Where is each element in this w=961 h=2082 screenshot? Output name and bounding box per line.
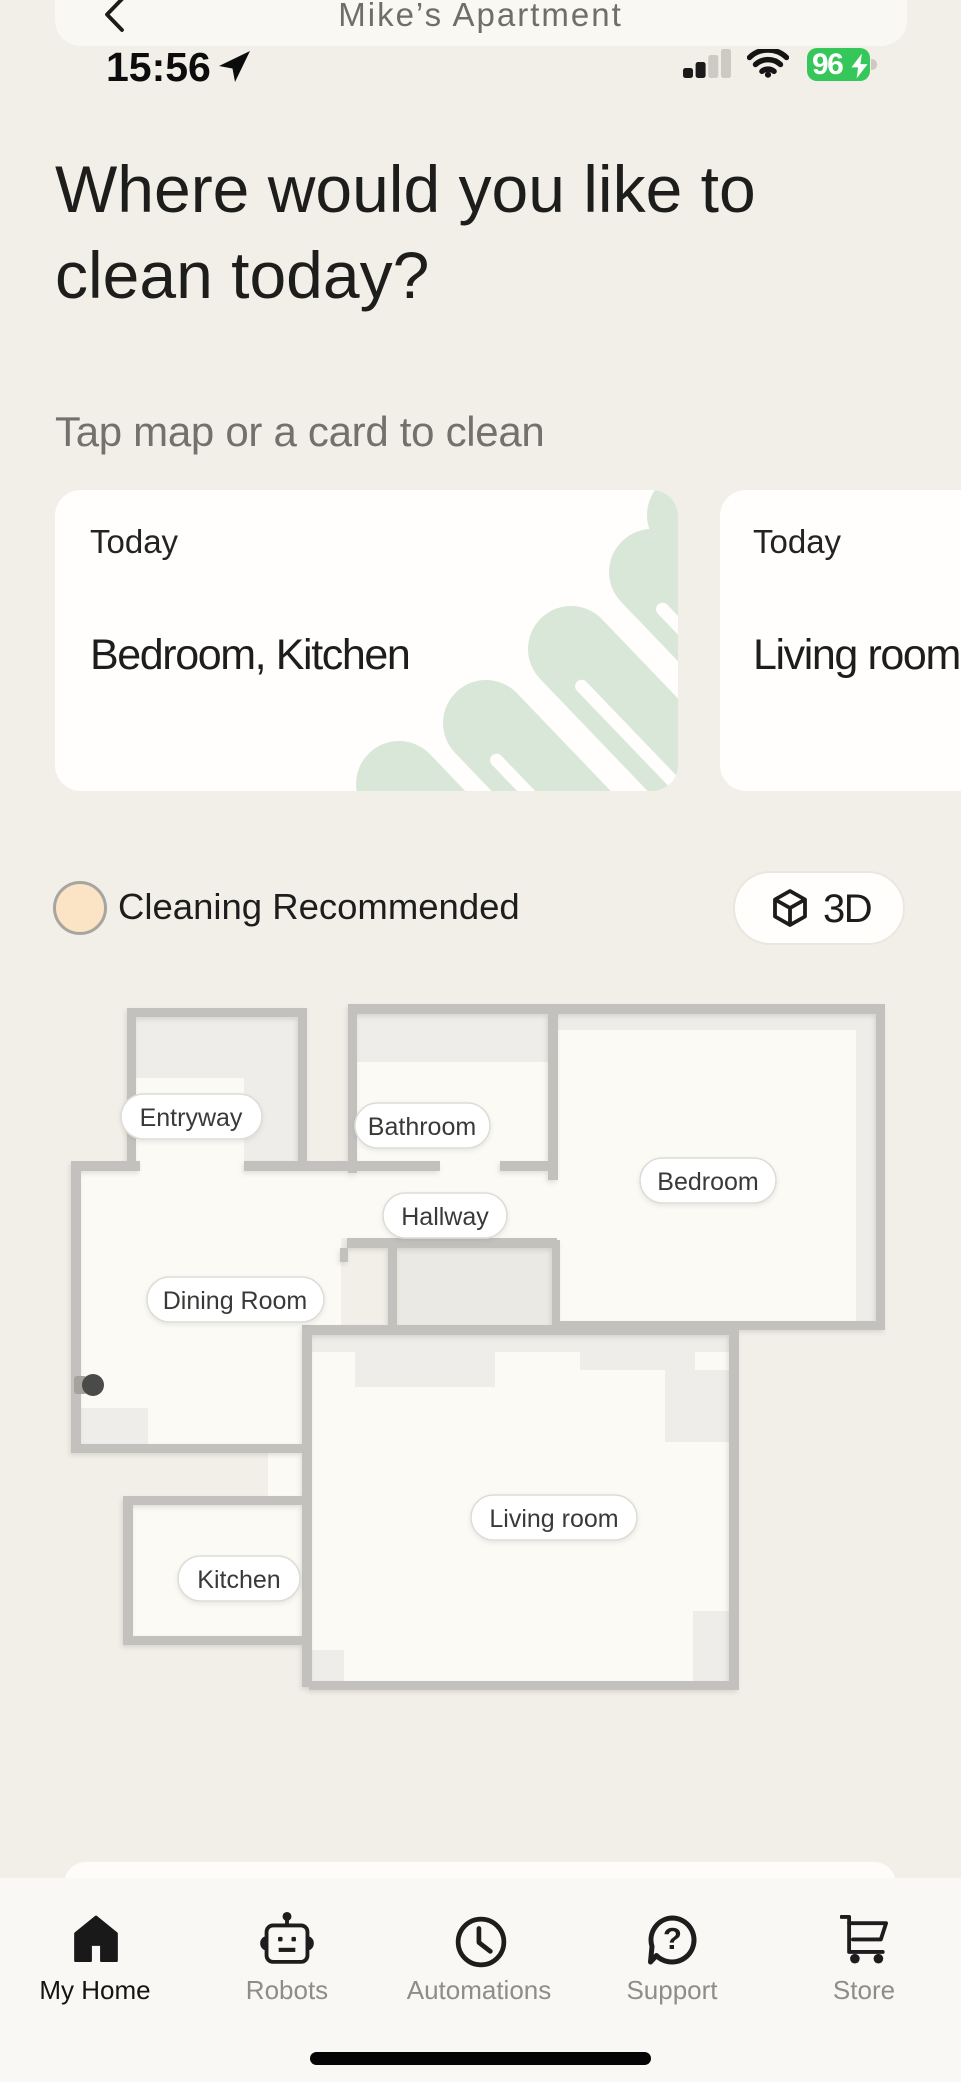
- svg-text:Hallway: Hallway: [401, 1203, 489, 1231]
- svg-text:?: ?: [663, 1921, 682, 1956]
- svg-text:Living room: Living room: [489, 1505, 618, 1533]
- svg-text:Bedroom: Bedroom: [657, 1168, 758, 1196]
- svg-text:Bathroom: Bathroom: [368, 1113, 476, 1141]
- svg-text:Kitchen: Kitchen: [197, 1566, 280, 1594]
- svg-text:Dining Room: Dining Room: [163, 1287, 308, 1315]
- svg-text:Entryway: Entryway: [140, 1104, 243, 1132]
